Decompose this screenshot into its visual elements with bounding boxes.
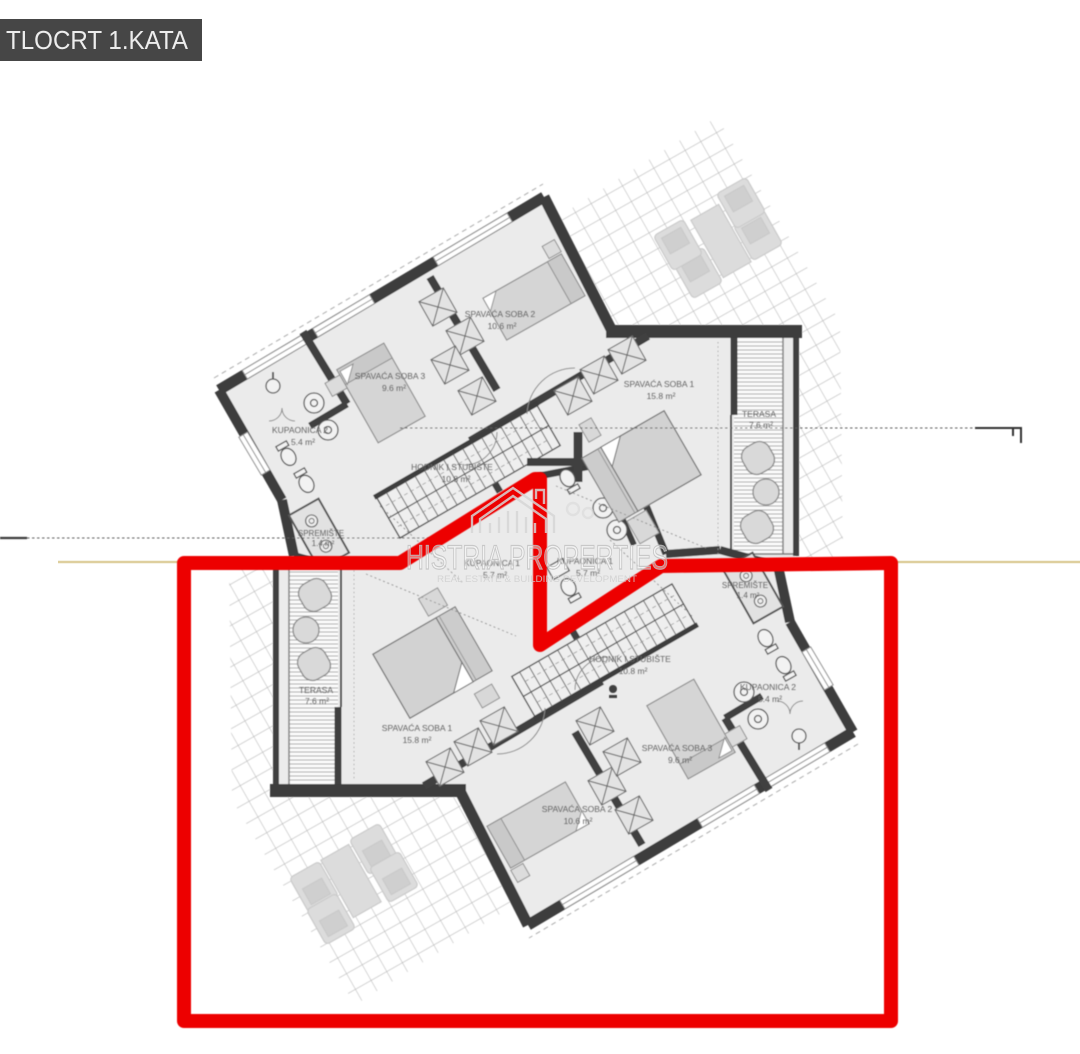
svg-text:TLOCRT 1.KATA: TLOCRT 1.KATA xyxy=(6,25,189,55)
svg-text:10.6 m²: 10.6 m² xyxy=(488,321,517,331)
svg-text:SPAVAĆA SOBA 1: SPAVAĆA SOBA 1 xyxy=(624,379,695,389)
svg-text:SPAVAĆA SOBA 3: SPAVAĆA SOBA 3 xyxy=(355,371,426,381)
svg-text:5.4 m²: 5.4 m² xyxy=(758,694,782,704)
svg-text:SPREMIŠTE: SPREMIŠTE xyxy=(298,529,344,538)
svg-text:HISTRIA PROPERTIES: HISTRIA PROPERTIES xyxy=(406,539,668,577)
svg-text:KUPAONICA 2: KUPAONICA 2 xyxy=(740,682,796,692)
svg-text:7.6 m²: 7.6 m² xyxy=(749,420,773,430)
svg-text:SPREMIŠTE: SPREMIŠTE xyxy=(722,581,768,590)
svg-text:15.8 m²: 15.8 m² xyxy=(647,391,676,401)
svg-text:1.4 m²: 1.4 m² xyxy=(312,539,335,548)
svg-text:9.6 m²: 9.6 m² xyxy=(668,755,692,765)
svg-text:5.4 m²: 5.4 m² xyxy=(291,437,315,447)
svg-text:10.6 m²: 10.6 m² xyxy=(564,816,593,826)
svg-text:KUPAONICA 2: KUPAONICA 2 xyxy=(272,425,328,435)
svg-text:REAL ESTATE & BUILDING DEVELOP: REAL ESTATE & BUILDING DEVELOPMENT xyxy=(437,574,637,585)
svg-text:TERASA: TERASA xyxy=(742,409,776,419)
svg-text:SPAVAĆA SOBA 1: SPAVAĆA SOBA 1 xyxy=(382,723,453,733)
svg-text:HODNIK I STUBIŠTE: HODNIK I STUBIŠTE xyxy=(589,654,671,664)
svg-text:TERASA: TERASA xyxy=(299,685,333,695)
svg-text:7.6 m²: 7.6 m² xyxy=(305,696,329,706)
svg-text:9.6 m²: 9.6 m² xyxy=(382,383,406,393)
svg-text:10.8 m²: 10.8 m² xyxy=(442,474,471,484)
svg-text:SPAVAĆA SOBA 2: SPAVAĆA SOBA 2 xyxy=(465,309,536,319)
svg-text:HODNIK I STUBIŠTE: HODNIK I STUBIŠTE xyxy=(411,462,493,472)
svg-text:10.8 m²: 10.8 m² xyxy=(619,666,648,676)
svg-text:1.4 m²: 1.4 m² xyxy=(737,591,760,600)
svg-text:SPAVAĆA SOBA 2: SPAVAĆA SOBA 2 xyxy=(542,804,613,814)
svg-text:SPAVAĆA SOBA 3: SPAVAĆA SOBA 3 xyxy=(642,743,713,753)
svg-text:15.8 m²: 15.8 m² xyxy=(403,735,432,745)
